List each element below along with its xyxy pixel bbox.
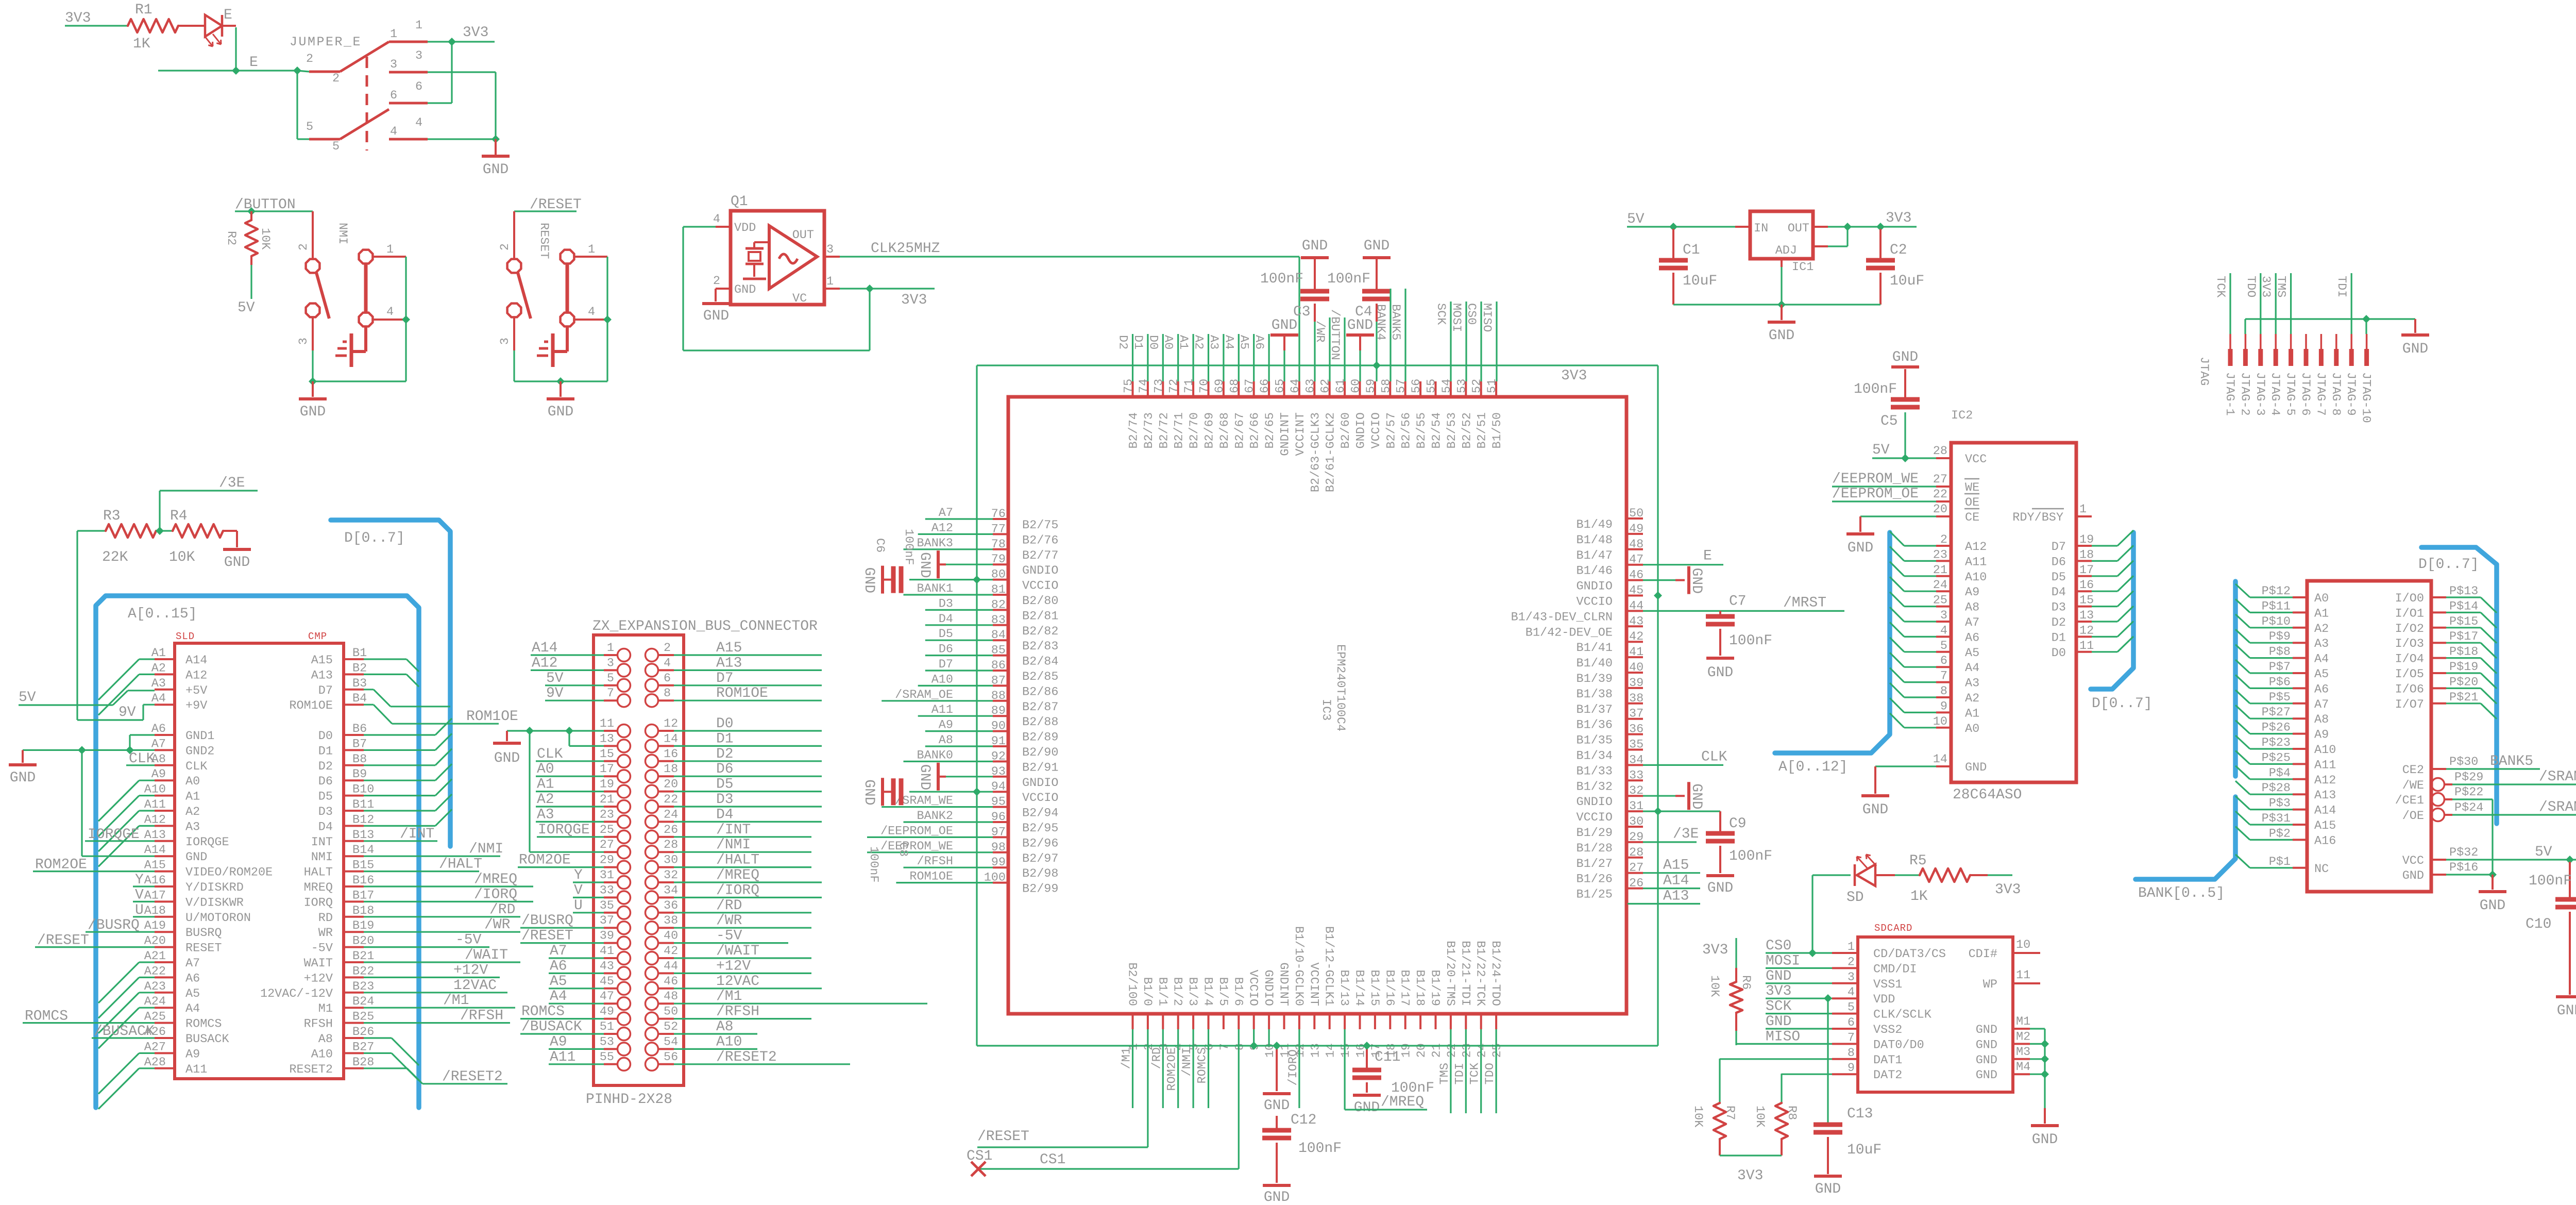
svg-text:41: 41 — [600, 944, 614, 958]
svg-text:WP: WP — [1983, 978, 1997, 992]
svg-text:A9: A9 — [550, 1034, 567, 1050]
svg-text:A5: A5 — [185, 987, 200, 1001]
svg-text:12VAC: 12VAC — [453, 978, 497, 994]
svg-text:100nF: 100nF — [2529, 873, 2572, 889]
svg-text:D6: D6 — [939, 643, 953, 657]
svg-text:CS1: CS1 — [967, 1148, 992, 1164]
svg-text:/RD: /RD — [1150, 1047, 1164, 1069]
svg-text:P$16: P$16 — [2449, 861, 2478, 875]
svg-text:B2/90: B2/90 — [1022, 746, 1059, 760]
svg-text:B17: B17 — [352, 889, 374, 902]
svg-text:B2/99: B2/99 — [1022, 882, 1059, 896]
svg-text:A11: A11 — [144, 798, 166, 812]
svg-text:/BUSACK: /BUSACK — [94, 1024, 155, 1040]
svg-text:B1/19: B1/19 — [1428, 969, 1442, 1006]
svg-text:GND: GND — [861, 779, 877, 805]
svg-text:23: 23 — [600, 808, 614, 822]
svg-text:A9: A9 — [151, 767, 166, 781]
svg-text:1: 1 — [607, 641, 614, 655]
svg-text:A3: A3 — [151, 677, 166, 691]
svg-text:B2/69: B2/69 — [1203, 412, 1217, 449]
svg-text:B16: B16 — [352, 874, 374, 888]
svg-text:D2: D2 — [318, 760, 333, 774]
svg-text:/MREQ: /MREQ — [716, 867, 759, 883]
svg-text:Y: Y — [574, 867, 583, 883]
svg-text:B2/86: B2/86 — [1022, 685, 1059, 699]
svg-text:A4: A4 — [185, 1002, 200, 1016]
svg-text:B24: B24 — [352, 995, 374, 1009]
svg-text:CLK: CLK — [185, 760, 208, 774]
svg-text:I/O6: I/O6 — [2395, 682, 2424, 696]
svg-text:P$23: P$23 — [2262, 736, 2291, 750]
svg-text:A6: A6 — [1252, 335, 1266, 349]
svg-text:E: E — [249, 55, 258, 71]
svg-text:8: 8 — [664, 687, 671, 700]
svg-text:11: 11 — [600, 717, 614, 731]
svg-text:P$7: P$7 — [2269, 660, 2291, 674]
svg-text:A3: A3 — [2314, 637, 2329, 651]
svg-text:/MREQ: /MREQ — [474, 872, 517, 888]
svg-text:1: 1 — [1848, 940, 1855, 954]
svg-text:U/MOTORON: U/MOTORON — [185, 911, 251, 925]
svg-text:B9: B9 — [352, 767, 367, 781]
svg-text:99: 99 — [991, 856, 1006, 869]
svg-text:ROMCS: ROMCS — [25, 1009, 68, 1025]
svg-text:GNDINT: GNDINT — [1279, 412, 1293, 456]
svg-text:P$30: P$30 — [2449, 755, 2478, 769]
svg-text:BANK3: BANK3 — [917, 537, 953, 550]
svg-text:8: 8 — [1940, 684, 1947, 698]
svg-text:2: 2 — [1848, 955, 1855, 969]
svg-text:A16: A16 — [144, 874, 166, 888]
svg-text:GND: GND — [2032, 1132, 2058, 1148]
svg-text:GND: GND — [2402, 341, 2428, 357]
svg-text:49: 49 — [600, 1005, 614, 1019]
svg-text:/EEPROM_OE: /EEPROM_OE — [880, 824, 953, 838]
svg-text:55: 55 — [1425, 379, 1439, 393]
svg-text:/WAIT: /WAIT — [465, 947, 508, 963]
svg-text:CLK: CLK — [1701, 749, 1727, 765]
svg-text:18: 18 — [664, 762, 678, 776]
svg-text:A8: A8 — [716, 1019, 734, 1035]
svg-text:41: 41 — [1629, 645, 1643, 659]
svg-text:P$13: P$13 — [2449, 584, 2478, 598]
svg-text:/M1: /M1 — [443, 993, 469, 1009]
svg-text:NMI: NMI — [311, 850, 333, 864]
svg-text:M4: M4 — [2016, 1060, 2030, 1074]
svg-text:JTAG-5: JTAG-5 — [2283, 372, 2297, 416]
svg-text:6: 6 — [415, 80, 422, 94]
svg-text:83: 83 — [991, 613, 1006, 627]
svg-text:A1: A1 — [151, 646, 166, 660]
svg-text:MOSI: MOSI — [1449, 303, 1463, 332]
svg-text:ROMCS: ROMCS — [521, 1004, 565, 1020]
svg-text:16: 16 — [2079, 578, 2094, 592]
svg-text:B1/6: B1/6 — [1231, 977, 1245, 1006]
svg-text:A20: A20 — [144, 934, 166, 948]
svg-text:57: 57 — [1395, 379, 1409, 393]
svg-text:C7: C7 — [1729, 593, 1747, 609]
svg-text:B10: B10 — [352, 783, 374, 797]
svg-text:JTAG-3: JTAG-3 — [2253, 372, 2267, 416]
svg-text:ROM1OE: ROM1OE — [909, 870, 953, 884]
svg-text:90: 90 — [991, 719, 1006, 733]
svg-text:71: 71 — [1182, 379, 1196, 393]
svg-text:GND: GND — [734, 283, 756, 297]
svg-text:VDD: VDD — [1873, 993, 1895, 1007]
svg-text:A0: A0 — [1965, 722, 1979, 736]
svg-text:P$29: P$29 — [2454, 771, 2483, 784]
svg-text:/NMI: /NMI — [1180, 1047, 1194, 1076]
svg-text:D[0..7]: D[0..7] — [2092, 696, 2153, 712]
svg-text:/SRAM_OE: /SRAM_OE — [895, 688, 953, 702]
svg-text:GND: GND — [1264, 1098, 1290, 1114]
svg-text:A8: A8 — [1965, 601, 1979, 615]
svg-text:A10: A10 — [716, 1034, 742, 1050]
svg-text:CS0: CS0 — [1766, 938, 1791, 954]
svg-text:OUT: OUT — [1788, 222, 1809, 236]
svg-text:1: 1 — [2079, 503, 2087, 516]
svg-text:VCCIO: VCCIO — [1022, 579, 1059, 593]
svg-text:1K: 1K — [133, 36, 150, 52]
svg-text:A3: A3 — [1207, 335, 1221, 349]
svg-text:-5V: -5V — [311, 942, 333, 956]
svg-text:CDI#: CDI# — [1969, 947, 1997, 961]
svg-text:4: 4 — [386, 305, 394, 319]
svg-text:95: 95 — [991, 795, 1006, 809]
svg-text:ROM1OE: ROM1OE — [716, 685, 768, 701]
svg-text:27: 27 — [1629, 861, 1643, 875]
svg-text:/CE1: /CE1 — [2395, 794, 2424, 808]
svg-text:+9V: +9V — [185, 699, 207, 713]
svg-text:B1/37: B1/37 — [1576, 703, 1613, 717]
svg-text:A12: A12 — [2314, 774, 2336, 788]
svg-text:CLK: CLK — [129, 751, 155, 767]
svg-text:3: 3 — [390, 58, 397, 72]
svg-text:5: 5 — [1940, 639, 1947, 653]
svg-text:GND: GND — [1769, 328, 1794, 344]
svg-text:VCCINT: VCCINT — [1307, 962, 1320, 1006]
svg-text:D0: D0 — [1146, 335, 1160, 349]
svg-text:A7: A7 — [939, 506, 953, 520]
svg-text:A12: A12 — [1965, 540, 1987, 554]
svg-text:B2/56: B2/56 — [1400, 412, 1414, 449]
svg-text:A11: A11 — [931, 703, 953, 717]
svg-text:/WR: /WR — [484, 917, 511, 933]
svg-text:R6: R6 — [1739, 975, 1753, 990]
svg-text:A2: A2 — [2314, 622, 2329, 636]
svg-text:I/O7: I/O7 — [2395, 698, 2424, 712]
svg-text:P$20: P$20 — [2449, 675, 2478, 689]
svg-text:85: 85 — [991, 644, 1006, 658]
svg-text:RESET: RESET — [537, 223, 551, 259]
svg-text:D7: D7 — [939, 658, 953, 672]
svg-text:/RFSH: /RFSH — [716, 1004, 759, 1020]
svg-text:A[0..12]: A[0..12] — [1778, 759, 1848, 775]
svg-text:B1/5: B1/5 — [1216, 977, 1230, 1006]
svg-text:34: 34 — [1629, 753, 1643, 767]
svg-text:3: 3 — [297, 338, 311, 345]
svg-text:8: 8 — [1233, 1043, 1247, 1050]
svg-text:B25: B25 — [352, 1010, 374, 1024]
svg-text:2: 2 — [332, 72, 340, 86]
svg-text:B26: B26 — [352, 1025, 374, 1039]
svg-text:VC: VC — [792, 292, 807, 306]
svg-text:79: 79 — [991, 553, 1006, 566]
svg-text:VCC: VCC — [1965, 453, 1987, 466]
svg-text:A9: A9 — [939, 718, 953, 732]
svg-text:30: 30 — [1629, 815, 1643, 829]
svg-text:/HALT: /HALT — [439, 857, 482, 873]
svg-text:A12: A12 — [185, 668, 207, 682]
svg-text:B1/43-DEV_CLRN: B1/43-DEV_CLRN — [1511, 610, 1613, 624]
svg-text:A2: A2 — [151, 661, 166, 675]
svg-text:A4: A4 — [2314, 652, 2329, 666]
svg-text:4: 4 — [1940, 624, 1947, 638]
svg-text:ROM2OE: ROM2OE — [519, 852, 571, 868]
svg-text:P$5: P$5 — [2269, 691, 2291, 705]
svg-text:/HALT: /HALT — [716, 852, 759, 868]
svg-text:GND: GND — [1707, 665, 1733, 681]
svg-text:BANK5: BANK5 — [2490, 754, 2533, 769]
svg-text:12: 12 — [664, 717, 678, 731]
svg-text:A7: A7 — [151, 737, 166, 751]
svg-text:B11: B11 — [352, 798, 374, 812]
svg-text:GND1: GND1 — [185, 729, 214, 743]
svg-text:A9: A9 — [1965, 585, 1979, 599]
svg-text:OUT: OUT — [792, 228, 814, 242]
svg-text:5V: 5V — [1872, 442, 1890, 458]
svg-text:68: 68 — [1228, 379, 1242, 393]
svg-text:+12V: +12V — [453, 962, 488, 978]
svg-text:IORQGE: IORQGE — [88, 827, 140, 843]
svg-text:B1/48: B1/48 — [1576, 533, 1613, 547]
svg-text:B2/94: B2/94 — [1022, 807, 1059, 821]
svg-text:/NMI: /NMI — [716, 837, 751, 853]
svg-text:1: 1 — [415, 19, 422, 32]
svg-text:A6: A6 — [151, 722, 166, 736]
svg-text:A10: A10 — [311, 1047, 333, 1061]
svg-text:IORQGE: IORQGE — [538, 822, 590, 838]
svg-text:GND: GND — [703, 308, 729, 324]
svg-text:INT: INT — [311, 835, 333, 849]
svg-text:35: 35 — [1629, 738, 1643, 752]
svg-text:RFSH: RFSH — [304, 1017, 333, 1031]
svg-text:B8: B8 — [352, 752, 367, 766]
svg-text:B1/34: B1/34 — [1576, 749, 1613, 763]
svg-text:3V3: 3V3 — [65, 10, 91, 26]
svg-text:3V3: 3V3 — [1737, 1168, 1763, 1184]
svg-text:10uF: 10uF — [1847, 1142, 1882, 1158]
svg-text:/M1: /M1 — [716, 989, 742, 1005]
svg-text:B1/18: B1/18 — [1413, 969, 1427, 1006]
svg-text:A7: A7 — [185, 957, 200, 970]
svg-text:A13: A13 — [2314, 789, 2336, 802]
svg-text:TMS: TMS — [1438, 1063, 1452, 1084]
svg-text:VCCIO: VCCIO — [1576, 811, 1613, 825]
svg-text:B1/46: B1/46 — [1576, 564, 1613, 578]
svg-text:A[0..15]: A[0..15] — [128, 606, 197, 622]
svg-text:P$14: P$14 — [2449, 599, 2478, 613]
svg-text:18: 18 — [2079, 548, 2094, 562]
svg-text:14: 14 — [664, 732, 678, 746]
svg-text:B1/17: B1/17 — [1398, 969, 1412, 1006]
svg-text:A13: A13 — [716, 655, 742, 671]
svg-text:A2: A2 — [537, 792, 554, 808]
svg-text:SCK: SCK — [1766, 999, 1792, 1015]
svg-text:/BUSRQ: /BUSRQ — [521, 913, 573, 929]
svg-text:D6: D6 — [318, 775, 333, 789]
svg-text:B1/32: B1/32 — [1576, 780, 1613, 794]
svg-text:D1: D1 — [2052, 631, 2066, 645]
svg-text:A5: A5 — [1965, 646, 1979, 660]
svg-text:B2/96: B2/96 — [1022, 836, 1059, 850]
svg-text:44: 44 — [664, 959, 678, 973]
svg-text:GND: GND — [1688, 568, 1704, 594]
svg-text:TDI: TDI — [1453, 1063, 1467, 1084]
svg-text:10K: 10K — [1691, 1106, 1705, 1128]
svg-text:M3: M3 — [2016, 1045, 2030, 1059]
svg-text:B2/75: B2/75 — [1022, 518, 1059, 532]
svg-text:I/O3: I/O3 — [2395, 637, 2424, 651]
svg-text:B1/22-TCK: B1/22-TCK — [1473, 941, 1487, 1007]
svg-text:46: 46 — [664, 975, 678, 989]
svg-text:A4: A4 — [1965, 661, 1979, 675]
svg-text:1: 1 — [390, 27, 397, 41]
svg-text:JTAG: JTAG — [2197, 357, 2211, 386]
svg-text:B1/4: B1/4 — [1201, 977, 1215, 1006]
svg-text:61: 61 — [1334, 379, 1348, 393]
svg-text:48: 48 — [664, 990, 678, 1003]
svg-text:2: 2 — [498, 243, 512, 250]
svg-text:GND: GND — [1264, 1190, 1290, 1205]
svg-text:A6: A6 — [2314, 682, 2329, 696]
svg-text:ROM1OE: ROM1OE — [289, 699, 333, 713]
svg-text:EPM240T100C4: EPM240T100C4 — [1333, 644, 1347, 731]
svg-text:21: 21 — [600, 793, 614, 807]
svg-text:40: 40 — [664, 929, 678, 943]
svg-text:P$9: P$9 — [2269, 630, 2291, 644]
svg-text:GND: GND — [1766, 1014, 1791, 1030]
svg-text:44: 44 — [1629, 599, 1643, 613]
svg-text:R5: R5 — [1909, 853, 1927, 869]
svg-text:B2/55: B2/55 — [1415, 412, 1429, 449]
svg-text:17: 17 — [600, 762, 614, 776]
svg-text:21: 21 — [1933, 563, 1947, 577]
svg-text:/IORQ: /IORQ — [474, 886, 517, 902]
svg-text:A2: A2 — [185, 805, 200, 819]
svg-text:6: 6 — [1848, 1016, 1855, 1030]
svg-text:B1/1: B1/1 — [1155, 977, 1169, 1006]
svg-text:GNDINT: GNDINT — [1277, 962, 1291, 1006]
svg-text:29: 29 — [1629, 830, 1643, 844]
svg-text:MOSI: MOSI — [1766, 953, 1800, 969]
svg-text:VSS1: VSS1 — [1873, 978, 1902, 992]
svg-text:WE: WE — [1965, 481, 1979, 495]
svg-text:V: V — [574, 882, 583, 898]
svg-text:OE: OE — [1965, 496, 1979, 510]
svg-text:D6: D6 — [2052, 555, 2066, 569]
svg-text:3V3: 3V3 — [2259, 276, 2273, 297]
svg-text:GND: GND — [1364, 238, 1389, 254]
svg-text:DAT2: DAT2 — [1873, 1068, 1902, 1082]
svg-text:45: 45 — [1629, 584, 1643, 598]
svg-text:P$17: P$17 — [2449, 630, 2478, 644]
svg-text:/M1: /M1 — [1120, 1047, 1134, 1069]
svg-text:/RD: /RD — [716, 898, 742, 914]
svg-text:50: 50 — [664, 1005, 678, 1019]
svg-text:P$25: P$25 — [2262, 751, 2291, 765]
svg-text:B13: B13 — [352, 828, 374, 842]
svg-text:/INT: /INT — [400, 826, 434, 842]
svg-text:33: 33 — [600, 883, 614, 897]
svg-text:B2/66: B2/66 — [1248, 412, 1262, 449]
svg-text:89: 89 — [991, 704, 1006, 718]
svg-text:B2/57: B2/57 — [1384, 412, 1398, 449]
svg-text:D2: D2 — [2052, 616, 2066, 630]
svg-text:/RD: /RD — [489, 902, 515, 918]
svg-text:B2/67: B2/67 — [1233, 412, 1247, 449]
svg-text:3: 3 — [607, 656, 614, 670]
svg-text:B19: B19 — [352, 919, 374, 933]
svg-text:B23: B23 — [352, 980, 374, 994]
svg-text:B2/74: B2/74 — [1127, 412, 1141, 449]
svg-text:/IORQ: /IORQ — [1286, 1049, 1300, 1086]
svg-text:A1: A1 — [1965, 707, 1979, 721]
svg-text:B2: B2 — [352, 661, 367, 675]
svg-text:/EEPROM_WE: /EEPROM_WE — [880, 840, 953, 853]
svg-text:CLK25MHZ: CLK25MHZ — [871, 241, 940, 257]
svg-text:P$26: P$26 — [2262, 721, 2291, 735]
svg-text:100nF: 100nF — [902, 529, 916, 565]
svg-text:36: 36 — [1629, 723, 1643, 737]
svg-text:4: 4 — [415, 116, 422, 130]
svg-text:A8: A8 — [939, 733, 953, 747]
svg-text:C2: C2 — [1890, 242, 1907, 258]
svg-text:A9: A9 — [185, 1047, 200, 1061]
svg-text:CMP: CMP — [308, 631, 327, 642]
svg-text:15: 15 — [600, 747, 614, 761]
svg-text:M1: M1 — [318, 1002, 333, 1016]
svg-text:17: 17 — [2079, 563, 2094, 577]
svg-text:91: 91 — [991, 734, 1006, 748]
svg-text:1: 1 — [386, 243, 394, 257]
svg-text:43: 43 — [1629, 614, 1643, 628]
svg-text:VCCIO: VCCIO — [1246, 969, 1260, 1006]
svg-text:B2/81: B2/81 — [1022, 609, 1059, 623]
svg-text:38: 38 — [664, 914, 678, 928]
svg-text:94: 94 — [991, 780, 1006, 794]
svg-text:B1/33: B1/33 — [1576, 764, 1613, 778]
svg-text:/3E: /3E — [1673, 826, 1699, 842]
svg-text:B2/80: B2/80 — [1022, 594, 1059, 608]
svg-text:/INT: /INT — [716, 822, 751, 838]
svg-text:9V: 9V — [118, 705, 136, 721]
svg-text:B2/71: B2/71 — [1173, 412, 1187, 449]
svg-text:3: 3 — [1848, 970, 1855, 984]
svg-text:43: 43 — [600, 959, 614, 973]
svg-text:A15: A15 — [716, 640, 742, 656]
svg-text:/IORQ: /IORQ — [716, 882, 759, 898]
svg-text:24: 24 — [1933, 578, 1947, 592]
svg-text:I/O5: I/O5 — [2395, 667, 2424, 681]
svg-text:6: 6 — [390, 89, 397, 103]
svg-text:2: 2 — [1940, 533, 1947, 547]
svg-text:GND: GND — [224, 555, 250, 571]
svg-text:A14: A14 — [2314, 804, 2336, 818]
svg-text:P$31: P$31 — [2262, 812, 2291, 826]
svg-text:A4: A4 — [550, 989, 567, 1005]
